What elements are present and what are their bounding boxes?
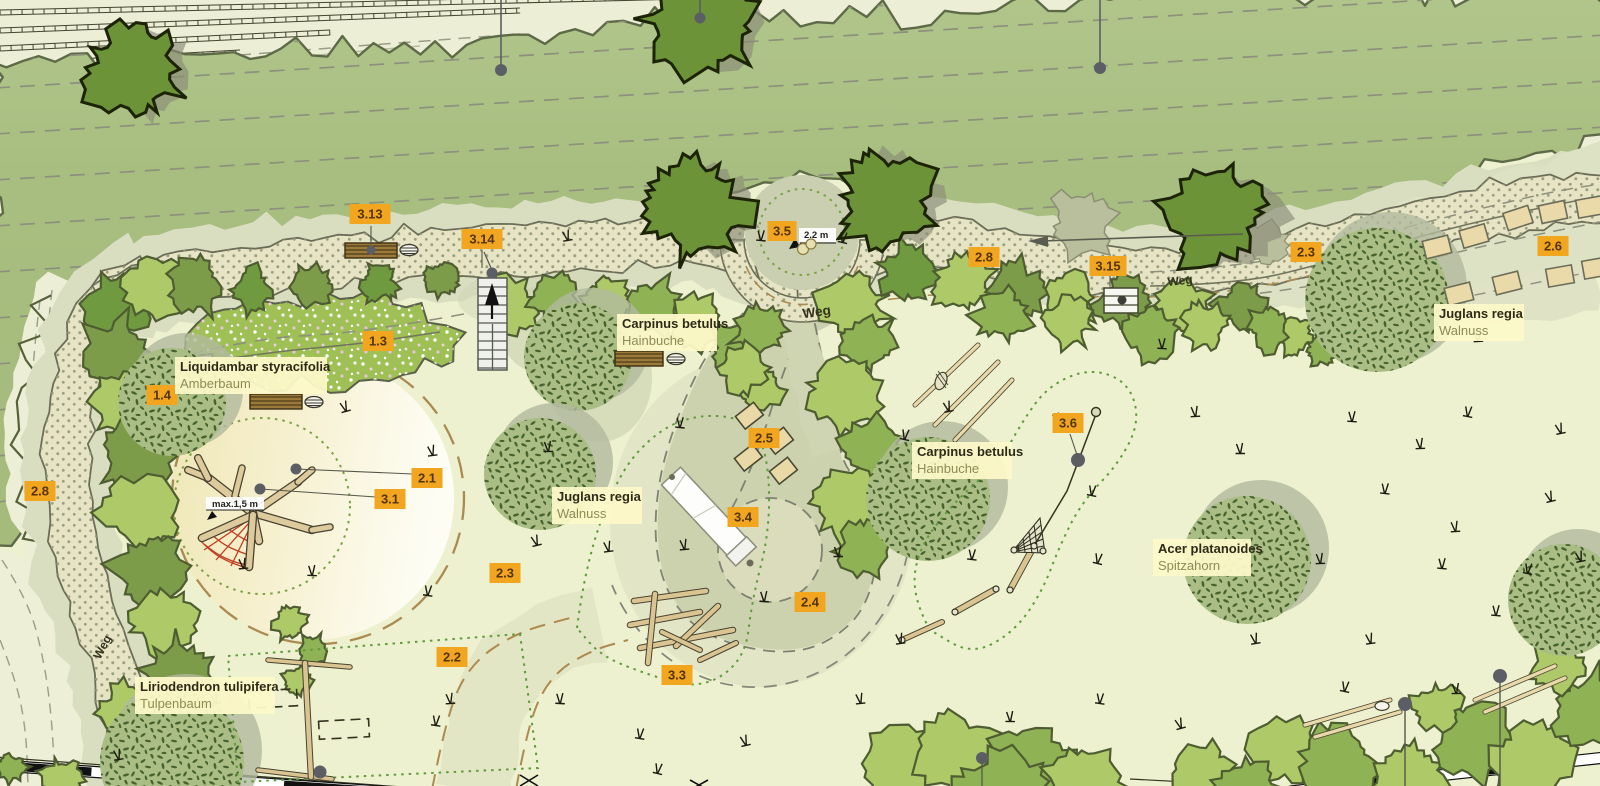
svg-text:Weg: Weg [1167,272,1193,289]
svg-text:Liriodendron tulipifera: Liriodendron tulipifera [140,679,279,694]
svg-text:3.13: 3.13 [357,207,382,222]
svg-text:Amberbaum: Amberbaum [180,376,251,391]
svg-text:Hainbuche: Hainbuche [622,333,684,348]
svg-text:3.14: 3.14 [469,232,495,247]
svg-text:2.3: 2.3 [496,566,514,581]
svg-text:Tulpenbaum: Tulpenbaum [140,696,212,711]
svg-text:Walnuss: Walnuss [557,506,607,521]
svg-text:Carpinus betulus: Carpinus betulus [917,444,1023,459]
svg-text:Acer platanoides: Acer platanoides [1158,541,1263,556]
svg-text:max.1,5 m: max.1,5 m [212,499,258,510]
svg-text:2.2 m: 2.2 m [804,230,828,241]
svg-text:3.5: 3.5 [773,224,791,239]
svg-text:Juglans regia: Juglans regia [1439,306,1524,321]
svg-text:3.3: 3.3 [668,668,686,683]
svg-text:Liquidambar styracifolia: Liquidambar styracifolia [180,359,331,374]
svg-text:Carpinus betulus: Carpinus betulus [622,316,728,331]
svg-text:Hainbuche: Hainbuche [917,461,979,476]
svg-text:2.8: 2.8 [975,250,993,265]
svg-text:3.6: 3.6 [1059,416,1077,431]
svg-text:Juglans regia: Juglans regia [557,489,642,504]
svg-text:2.8: 2.8 [31,484,49,499]
svg-text:2.3: 2.3 [1297,245,1315,260]
svg-text:2.6: 2.6 [1544,239,1562,254]
svg-text:1.4: 1.4 [153,388,172,403]
svg-text:3.1: 3.1 [381,492,399,507]
svg-text:2.2: 2.2 [443,650,461,665]
svg-text:2.1: 2.1 [418,471,436,486]
svg-text:1.3: 1.3 [369,334,387,349]
svg-text:2.4: 2.4 [801,595,820,610]
svg-text:Spitzahorn: Spitzahorn [1158,558,1220,573]
svg-text:Walnuss: Walnuss [1439,323,1489,338]
svg-text:3.4: 3.4 [734,510,753,525]
svg-text:2.5: 2.5 [755,431,773,446]
svg-text:3.15: 3.15 [1095,259,1120,274]
